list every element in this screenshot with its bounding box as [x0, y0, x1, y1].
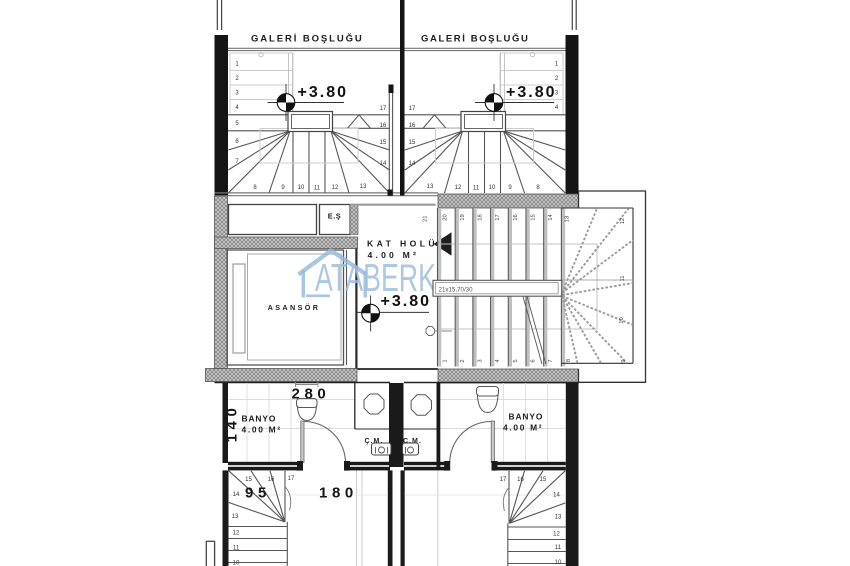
- svg-text:8: 8: [566, 359, 572, 362]
- svg-text:20: 20: [443, 214, 449, 220]
- svg-text:14: 14: [548, 214, 554, 221]
- svg-text:11: 11: [233, 546, 240, 552]
- svg-text:4.00 M²: 4.00 M²: [503, 423, 543, 433]
- svg-text:14: 14: [553, 493, 560, 499]
- svg-text:10: 10: [489, 185, 496, 191]
- svg-text:15: 15: [409, 140, 416, 146]
- svg-text:21x15,70/30: 21x15,70/30: [439, 286, 474, 293]
- svg-text:16: 16: [517, 477, 524, 483]
- svg-text:11: 11: [473, 186, 480, 192]
- svg-text:180: 180: [319, 485, 358, 502]
- svg-text:16: 16: [409, 123, 416, 129]
- svg-text:13: 13: [427, 184, 434, 190]
- svg-text:15: 15: [245, 477, 252, 483]
- svg-text:14: 14: [409, 161, 416, 167]
- svg-text:BANYO: BANYO: [242, 414, 277, 424]
- svg-text:5: 5: [513, 359, 519, 362]
- svg-text:3: 3: [478, 359, 484, 362]
- svg-text:17: 17: [495, 214, 501, 220]
- svg-text:10: 10: [298, 185, 305, 191]
- svg-text:E.Ş: E.Ş: [328, 212, 341, 221]
- svg-text:15: 15: [540, 477, 547, 483]
- svg-text:4.00 M²: 4.00 M²: [242, 425, 282, 435]
- svg-text:17: 17: [380, 106, 387, 112]
- svg-text:GALERİ BOŞLUĞU: GALERİ BOŞLUĞU: [251, 33, 364, 45]
- svg-text:6: 6: [531, 359, 537, 362]
- svg-text:11: 11: [555, 545, 562, 551]
- svg-text:13: 13: [565, 216, 571, 222]
- svg-text:15: 15: [531, 214, 537, 220]
- svg-text:21: 21: [423, 216, 429, 222]
- svg-text:4.00 M²: 4.00 M²: [368, 250, 420, 260]
- svg-text:12: 12: [233, 531, 240, 537]
- svg-text:16: 16: [513, 214, 519, 220]
- svg-text:1: 1: [443, 359, 449, 362]
- svg-text:9: 9: [621, 359, 627, 362]
- svg-text:95: 95: [245, 485, 271, 502]
- svg-text:18: 18: [478, 214, 484, 220]
- svg-text:+3.80: +3.80: [298, 84, 348, 101]
- svg-text:12: 12: [620, 218, 626, 224]
- svg-text:BANYO: BANYO: [509, 412, 544, 422]
- svg-text:17: 17: [500, 477, 507, 483]
- svg-text:KAT HOLÜ: KAT HOLÜ: [367, 239, 438, 249]
- svg-text:12: 12: [553, 532, 560, 538]
- svg-text:+3.80: +3.80: [381, 293, 431, 310]
- svg-text:15: 15: [380, 140, 387, 146]
- svg-text:17: 17: [288, 476, 295, 482]
- svg-text:140: 140: [224, 404, 241, 443]
- svg-text:13: 13: [555, 515, 562, 521]
- svg-text:ASANSÖR: ASANSÖR: [268, 303, 321, 312]
- svg-text:17: 17: [409, 106, 416, 112]
- svg-text:11: 11: [314, 186, 321, 192]
- svg-text:14: 14: [380, 161, 387, 167]
- svg-text:14: 14: [233, 492, 240, 498]
- svg-text:13: 13: [232, 514, 239, 520]
- svg-text:10: 10: [555, 560, 562, 566]
- svg-text:16: 16: [380, 123, 387, 129]
- svg-text:GALERİ BOŞLUĞU: GALERİ BOŞLUĞU: [421, 33, 529, 45]
- svg-text:7: 7: [548, 359, 554, 362]
- svg-text:10: 10: [619, 317, 625, 323]
- svg-text:+3.80: +3.80: [506, 84, 556, 101]
- svg-text:19: 19: [460, 214, 466, 220]
- svg-text:12: 12: [332, 185, 339, 191]
- svg-text:10: 10: [233, 561, 240, 566]
- svg-text:11: 11: [620, 275, 626, 281]
- svg-text:2: 2: [460, 359, 466, 362]
- svg-text:13: 13: [360, 184, 367, 190]
- svg-text:16: 16: [268, 477, 275, 483]
- svg-text:12: 12: [455, 185, 462, 191]
